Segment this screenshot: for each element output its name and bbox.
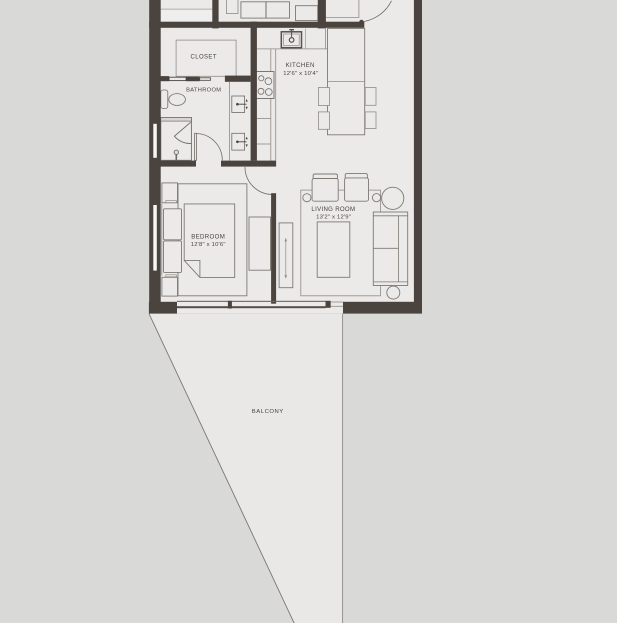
svg-text:12'8" x 10'6": 12'8" x 10'6" xyxy=(191,242,226,248)
svg-text:BALCONY: BALCONY xyxy=(252,409,284,415)
svg-text:BEDROOM: BEDROOM xyxy=(191,234,225,241)
svg-text:BATHROOM: BATHROOM xyxy=(186,88,221,94)
svg-text:12'6" x 10'4": 12'6" x 10'4" xyxy=(283,71,318,77)
svg-text:LIVING ROOM: LIVING ROOM xyxy=(311,206,355,213)
svg-text:13'2" x 12'9": 13'2" x 12'9" xyxy=(316,214,351,220)
svg-text:CLOSET: CLOSET xyxy=(190,54,216,60)
svg-text:KITCHEN: KITCHEN xyxy=(286,62,315,69)
